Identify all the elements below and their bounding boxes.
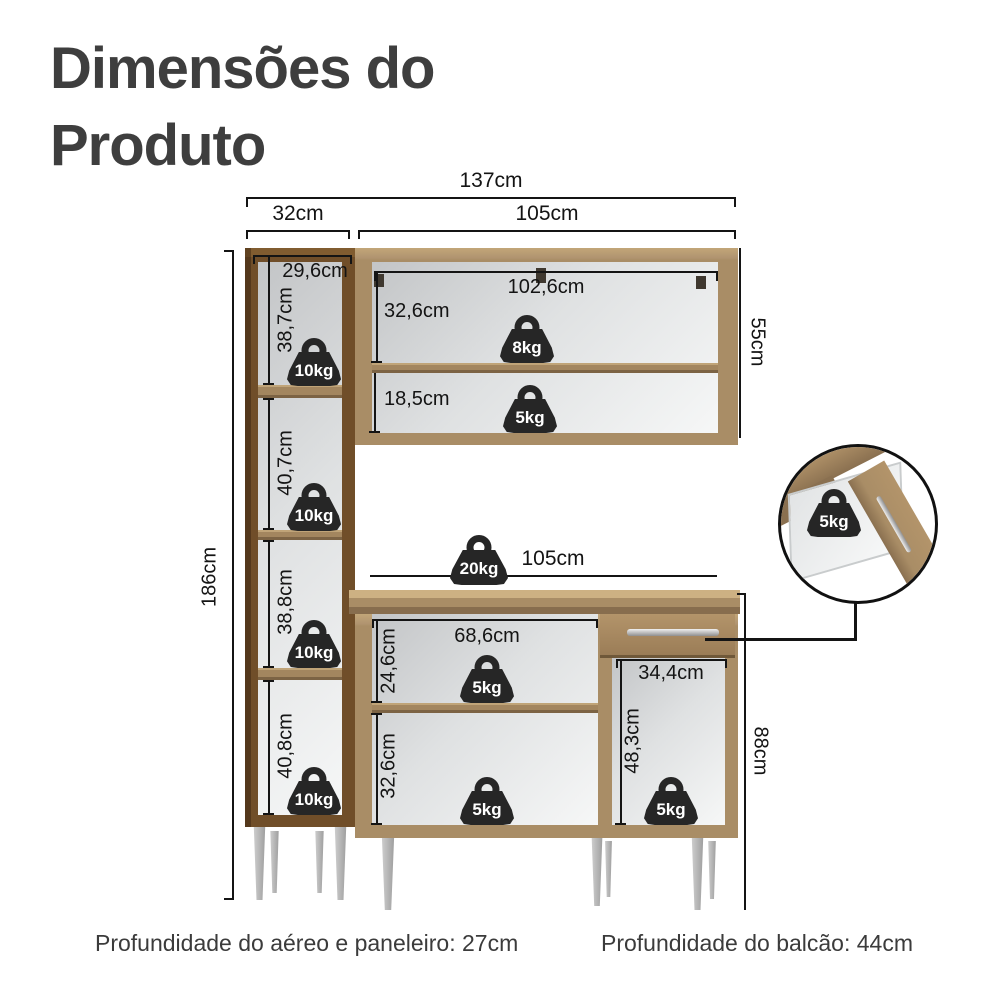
dimension-line — [370, 575, 717, 577]
tall-cabinet-width-label: 32cm — [272, 202, 323, 226]
kettlebell-weight-icon: 5kg — [460, 777, 514, 825]
dimension-tick — [716, 273, 718, 281]
tall-cabinet-shelf-3 — [258, 668, 342, 680]
dimension-line — [268, 256, 270, 385]
kettlebell-weight-icon: 8kg — [500, 315, 554, 363]
kettlebell-weight-icon: 10kg — [287, 767, 341, 815]
weight-capacity-label: 10kg — [295, 640, 334, 663]
weight-capacity-label: 5kg — [515, 405, 544, 428]
dimension-tick — [224, 898, 234, 900]
weight-capacity-label: 8kg — [512, 335, 541, 358]
open-section1-height-label: 24,6cm — [378, 628, 401, 694]
dimension-tick — [371, 823, 382, 825]
open-section2-height-label: 32,6cm — [378, 733, 401, 799]
depth-note-aereo-paneleiro: Profundidade do aéreo e paneleiro: 27cm — [95, 930, 518, 957]
kettlebell-weight-icon: 5kg — [503, 385, 557, 433]
cabinet-leg — [333, 827, 348, 900]
drawer-detail-inset: 5kg — [778, 444, 938, 604]
weight-capacity-label: 5kg — [819, 509, 848, 532]
dimension-line — [232, 250, 234, 900]
kettlebell-weight-icon: 5kg — [460, 655, 514, 703]
page-title-line2: Produto — [50, 107, 434, 184]
dimension-line — [268, 540, 270, 668]
depth-note-balcao: Profundidade do balcão: 44cm — [601, 930, 913, 957]
tall-cabinet-shelf-2 — [258, 530, 342, 540]
dimension-tick — [734, 199, 736, 207]
kettlebell-weight-icon: 10kg — [287, 620, 341, 668]
dimension-tick — [263, 813, 274, 815]
dimension-tick — [358, 232, 360, 239]
tall-cabinet-interior-width-label: 29,6cm — [282, 260, 348, 283]
cabinet-leg — [604, 841, 613, 897]
cabinet-leg — [314, 831, 325, 893]
cabinet-leg — [590, 838, 604, 906]
dimension-line — [739, 248, 741, 438]
dimension-line — [616, 659, 727, 661]
tall-cabinet-height-label: 186cm — [199, 547, 222, 607]
dimension-tick — [348, 232, 350, 239]
dimension-tick — [253, 257, 255, 264]
drawer-section-width-label: 34,4cm — [638, 662, 704, 685]
weight-capacity-label: 20kg — [460, 556, 499, 579]
tall-cabinet-shelf-1 — [258, 385, 342, 398]
weight-capacity-label: 5kg — [472, 797, 501, 820]
dimension-tick — [616, 661, 618, 668]
dimension-tick — [737, 593, 746, 595]
dimension-tick — [615, 823, 626, 825]
kettlebell-weight-icon: 5kg — [807, 489, 861, 537]
cabinet-leg — [707, 841, 717, 899]
dimension-tick — [371, 361, 382, 363]
rail-bracket-icon — [696, 276, 706, 289]
cabinet-leg — [269, 831, 280, 893]
upper-cabinet-height-label: 55cm — [746, 318, 769, 367]
dimension-line — [374, 373, 376, 433]
countertop-slab — [349, 590, 740, 614]
upper-cabinet-shelf — [372, 363, 718, 373]
dimension-line — [246, 230, 350, 232]
dimension-tick — [246, 232, 248, 239]
cabinet-leg — [690, 838, 705, 910]
upper-cabinet-width-label: 105cm — [515, 202, 578, 226]
drawer-handle — [627, 629, 719, 636]
dimension-tick — [263, 528, 274, 530]
upper-section1-height-label: 32,6cm — [384, 300, 450, 323]
weight-capacity-label: 10kg — [295, 503, 334, 526]
dimension-tick — [224, 250, 234, 252]
weight-capacity-label: 10kg — [295, 358, 334, 381]
dimension-line — [376, 271, 378, 363]
dimension-tick — [263, 680, 274, 682]
dimension-tick — [371, 713, 382, 715]
product-dimensions-diagram: Dimensões do Produto — [0, 0, 1000, 1000]
lower-cabinet-shelf — [372, 703, 598, 713]
cabinet-leg — [252, 827, 267, 900]
dimension-line — [372, 619, 598, 621]
dimension-tick — [263, 383, 274, 385]
weight-capacity-label: 10kg — [295, 787, 334, 810]
dimension-line — [246, 197, 736, 199]
page-title: Dimensões do Produto — [50, 30, 434, 184]
kettlebell-weight-icon: 10kg — [287, 483, 341, 531]
kettlebell-weight-icon: 20kg — [450, 535, 508, 585]
page-title-line1: Dimensões do — [50, 30, 434, 107]
dimension-tick — [263, 540, 274, 542]
dimension-tick — [734, 232, 736, 239]
cabinet-leg — [380, 838, 396, 910]
lower-cabinet-height-label: 88cm — [749, 727, 772, 776]
drawer-front — [600, 614, 735, 658]
dimension-tick — [372, 621, 374, 628]
dimension-tick — [263, 666, 274, 668]
dimension-tick — [371, 701, 382, 703]
dimension-tick — [263, 398, 274, 400]
weight-capacity-label: 5kg — [656, 797, 685, 820]
dimension-line — [358, 230, 736, 232]
open-section-width-label: 68,6cm — [454, 625, 520, 648]
dimension-line — [268, 680, 270, 815]
dimension-tick — [350, 257, 352, 264]
dimension-tick — [596, 621, 598, 628]
inset-connector-line — [854, 603, 857, 641]
dimension-tick — [246, 199, 248, 207]
upper-cabinet-interior-width-label: 102,6cm — [508, 276, 585, 299]
dimension-tick — [725, 661, 727, 668]
weight-capacity-label: 5kg — [472, 675, 501, 698]
kettlebell-weight-icon: 10kg — [287, 338, 341, 386]
upper-section2-height-label: 18,5cm — [384, 388, 450, 411]
drawer-section-height-label: 48,3cm — [622, 708, 645, 774]
inset-connector-line — [705, 638, 857, 641]
kettlebell-weight-icon: 5kg — [644, 777, 698, 825]
dimension-line — [374, 271, 718, 273]
dimension-tick — [369, 431, 380, 433]
total-width-label: 137cm — [459, 169, 522, 193]
dimension-line — [268, 398, 270, 530]
countertop-width-label: 105cm — [521, 547, 584, 571]
